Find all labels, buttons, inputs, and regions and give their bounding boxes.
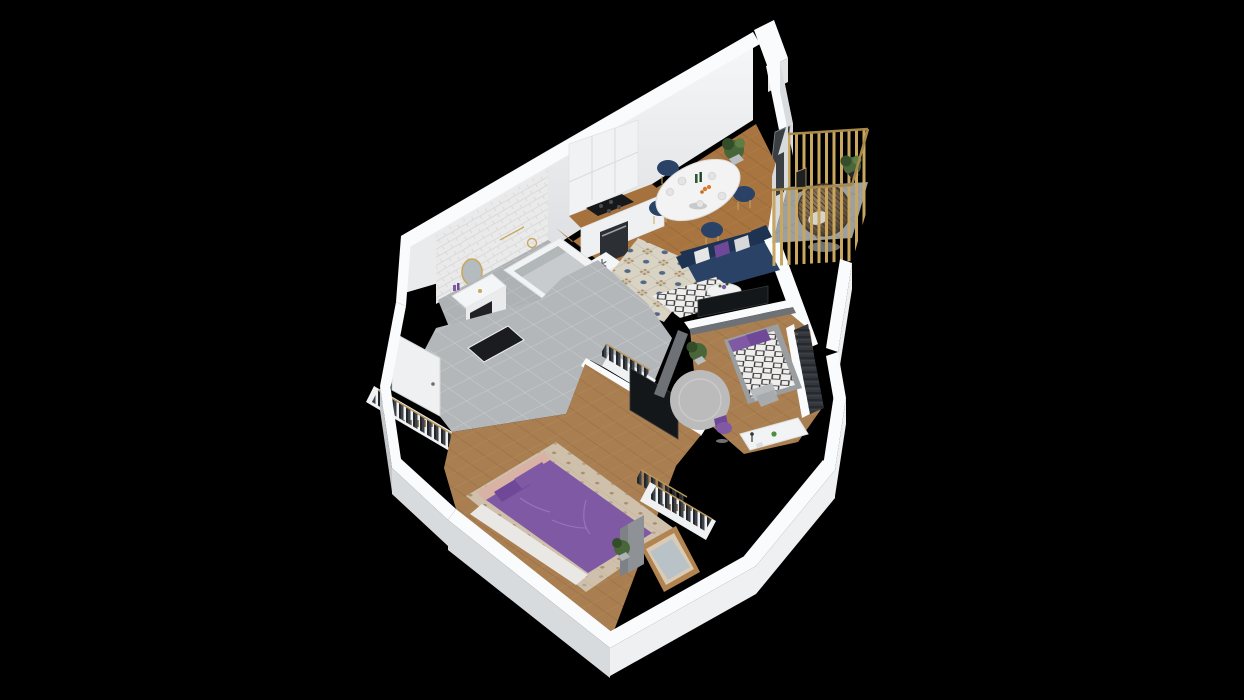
flower-greens	[726, 283, 729, 286]
cosmetic-bottle	[457, 283, 460, 290]
faucet	[478, 289, 482, 293]
flower-greens	[719, 285, 722, 288]
bottle	[700, 172, 702, 182]
dining-chair	[701, 222, 723, 238]
burner	[607, 209, 611, 213]
render-canvas: 3D apartment floor plan render Isometric…	[0, 0, 1244, 700]
curtain	[628, 515, 644, 573]
balcony	[772, 120, 868, 266]
burner	[617, 205, 621, 209]
flower-vase	[722, 285, 726, 289]
floor-plan-render: 3D apartment floor plan render Isometric…	[0, 0, 1244, 700]
parrot-figure	[771, 431, 776, 436]
cosmetic-bottle	[453, 285, 456, 291]
fruit	[707, 185, 711, 189]
burner	[599, 204, 603, 208]
fruit	[700, 190, 704, 194]
chair-base	[716, 439, 728, 443]
railing-near-s	[772, 185, 852, 266]
bottle	[695, 174, 698, 183]
burner	[609, 200, 613, 204]
desk-chair	[716, 422, 732, 434]
door-knob	[431, 382, 435, 386]
fruit	[703, 187, 707, 191]
desk-lamp-head	[750, 432, 754, 436]
